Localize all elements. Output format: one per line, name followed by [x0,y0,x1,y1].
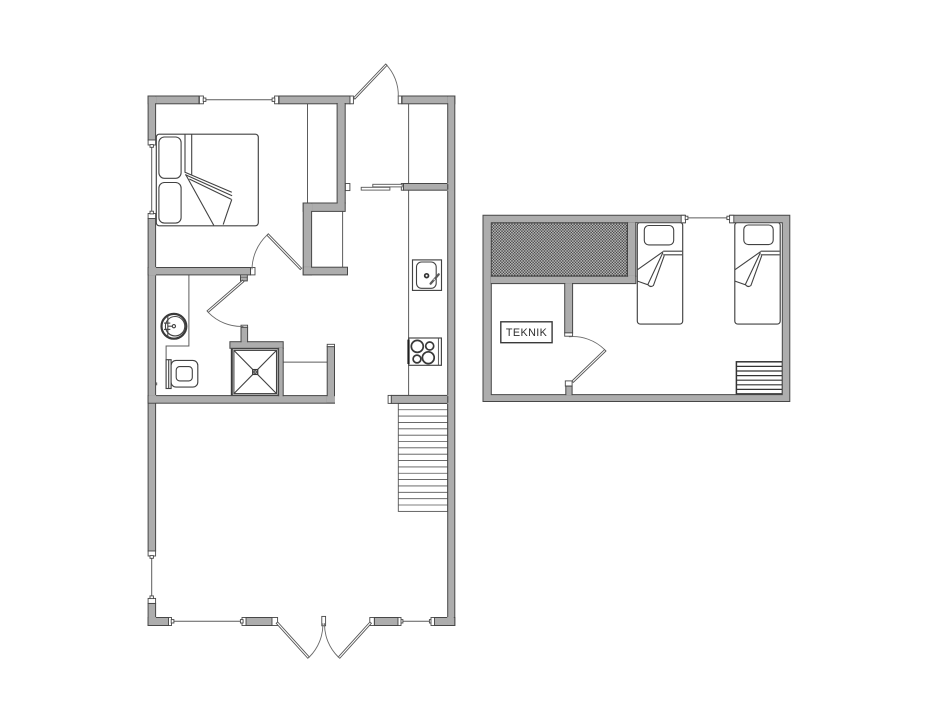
svg-text:TEKNIK: TEKNIK [506,327,548,339]
